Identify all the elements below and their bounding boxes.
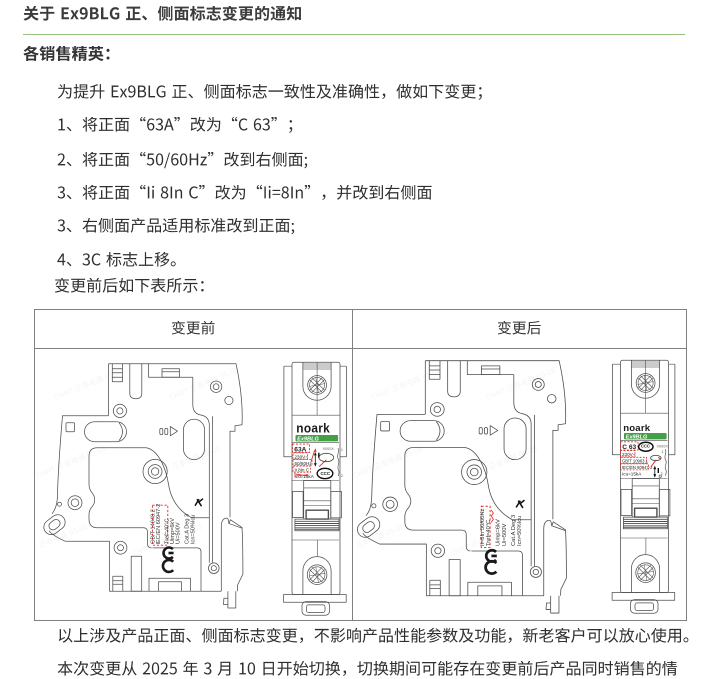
svg-text:Icn=50%Icu: Icn=50%Icu [516, 515, 522, 545]
svg-text:1: 1 [341, 448, 343, 452]
svg-text:CCC: CCC [641, 443, 650, 448]
svg-text:CCC: CCC [320, 471, 330, 476]
svg-text:Ex9BLG: Ex9BLG [625, 434, 647, 440]
svg-text:1: 1 [661, 450, 663, 454]
svg-text:Ui=500V: Ui=500V [502, 523, 508, 545]
svg-text:noark: noark [623, 423, 651, 434]
svg-text:Tref=40°C: Tref=40°C [485, 519, 491, 545]
svg-text:Ui=500V: Ui=500V [175, 522, 181, 544]
svg-text:Icn=50%Icu: Icn=50%Icu [190, 514, 196, 543]
svg-text:Ii 8In C: Ii 8In C [294, 467, 309, 472]
svg-text:Ex9BLG: Ex9BLG [297, 436, 319, 442]
svg-text:X000X: X000X [322, 447, 334, 451]
svg-text:X000X: X000X [656, 444, 668, 448]
svg-text:230V~: 230V~ [622, 452, 636, 457]
svg-text:GB/T 10963.1: GB/T 10963.1 [622, 458, 649, 463]
svg-text:IEC/EN 60947-2: IEC/EN 60947-2 [155, 504, 161, 545]
svg-text:Uimp=6kV: Uimp=6kV [495, 519, 501, 546]
svg-text:50/60Hz: 50/60Hz [294, 461, 312, 466]
svg-text:2: 2 [341, 474, 343, 478]
svg-text:230V~: 230V~ [294, 454, 308, 459]
svg-text:Icu=15kA: Icu=15kA [622, 471, 642, 476]
svg-text:noark: noark [296, 421, 330, 435]
svg-text:2: 2 [660, 472, 662, 476]
